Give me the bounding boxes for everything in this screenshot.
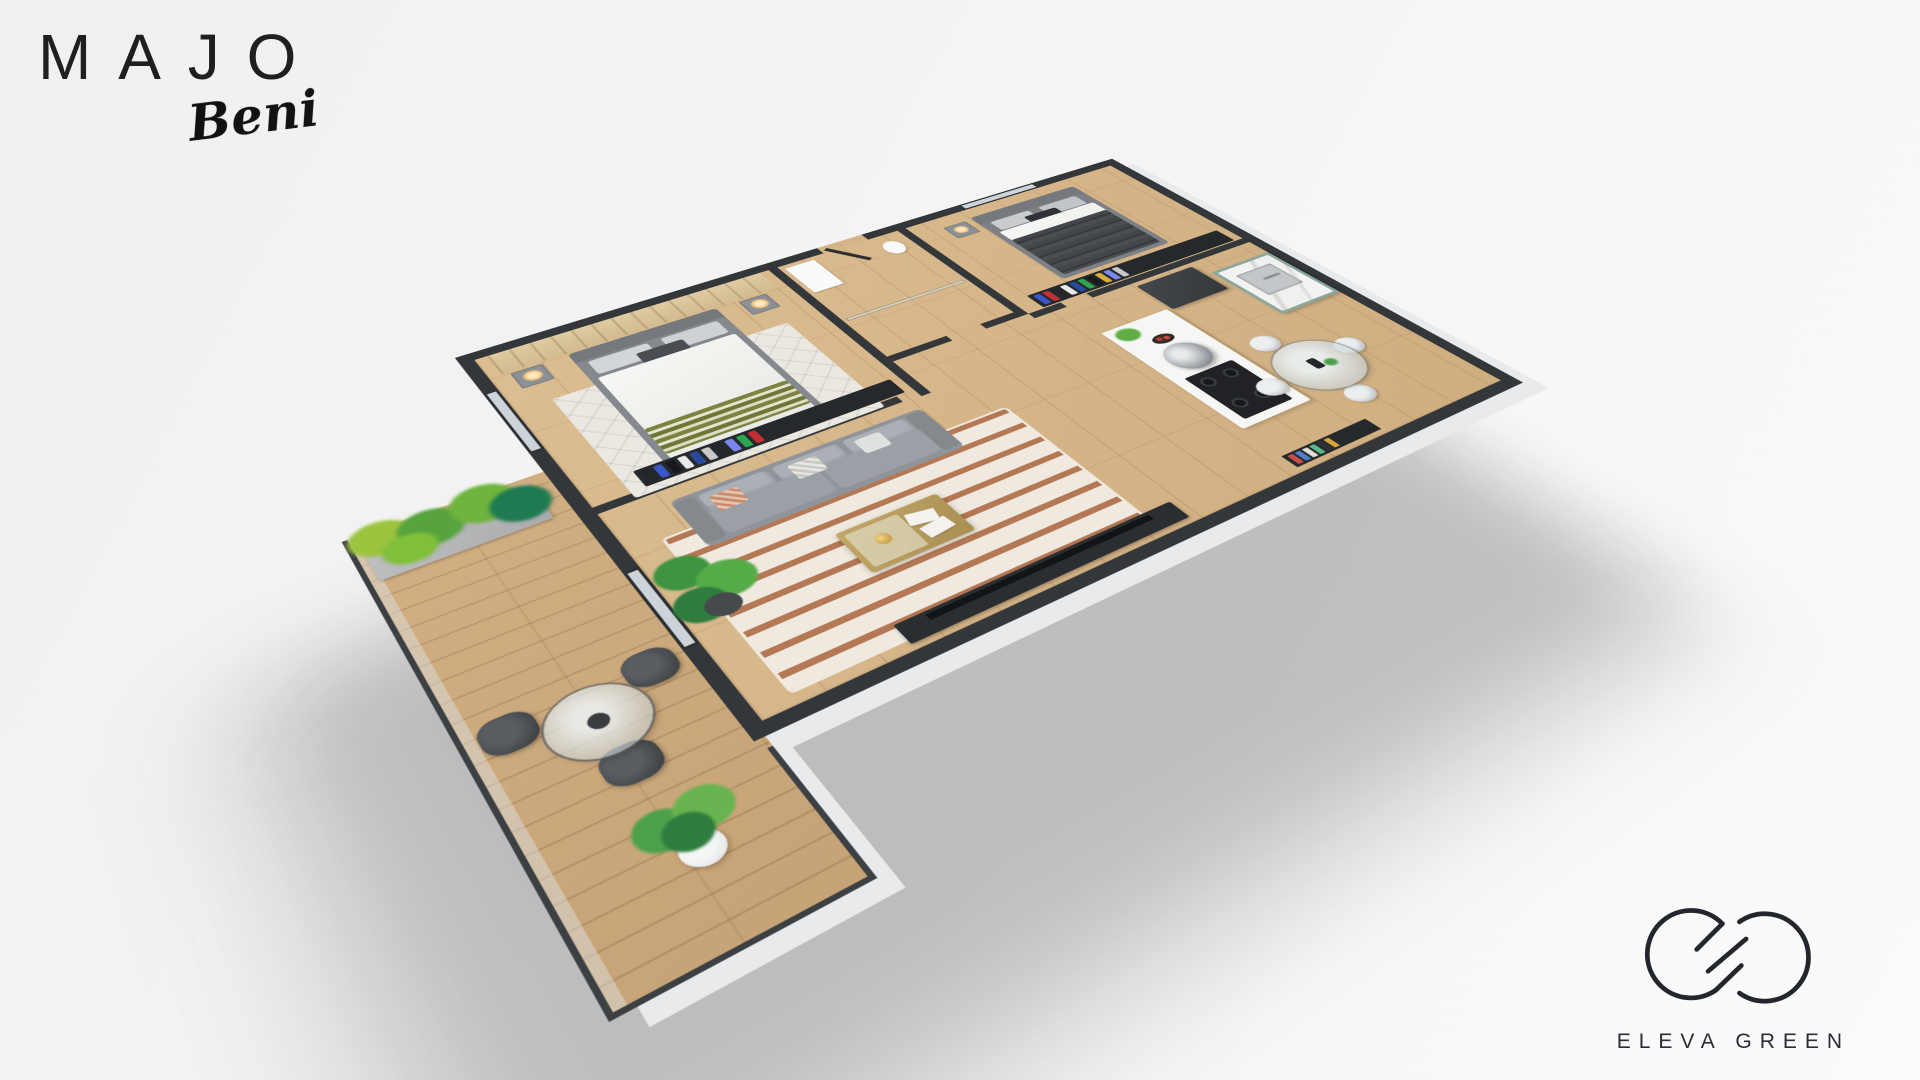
- eleva-green-text: ELEVA GREEN: [1609, 1030, 1850, 1054]
- eleva-green-icon: [1634, 894, 1824, 1020]
- eleva-green-logo: ELEVA GREEN: [1609, 894, 1850, 1054]
- burner: [1228, 396, 1253, 409]
- entry-door: [824, 248, 872, 260]
- floorplan-scene: [229, 154, 1675, 1070]
- shower-glass: [847, 280, 965, 320]
- burner: [1219, 367, 1243, 380]
- toilet: [878, 239, 911, 255]
- brand-logo: MAJO Beni: [38, 20, 323, 145]
- burner: [1196, 376, 1220, 389]
- terrace-door-glass: [483, 389, 545, 454]
- wall-hall-south: [980, 309, 1028, 328]
- sink-cabinet: [1212, 252, 1340, 314]
- wall-hall-south: [878, 336, 953, 365]
- plant-foliage: [1110, 326, 1146, 344]
- table-pedestal: [584, 709, 615, 732]
